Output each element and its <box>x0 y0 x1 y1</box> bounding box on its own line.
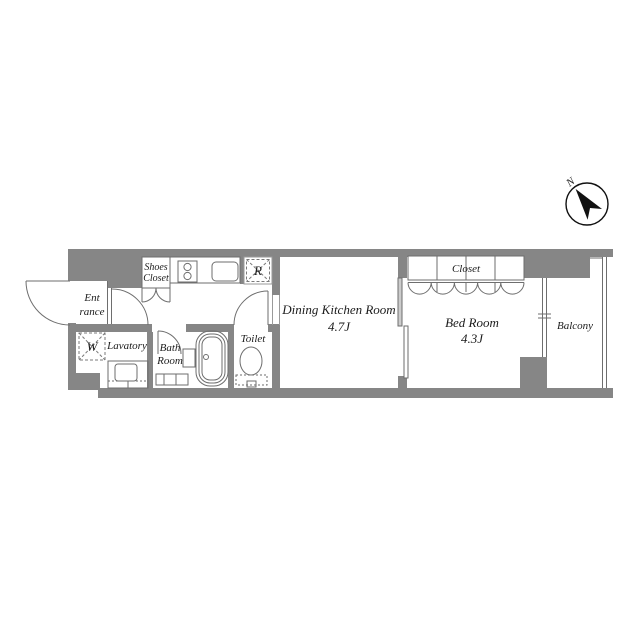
bath-label-1: Bath <box>160 342 181 354</box>
sliding-door-panel-1 <box>398 278 402 326</box>
bed-room-label: Bed Room <box>445 315 499 330</box>
closet-label: Closet <box>452 263 481 275</box>
compass-north-label: N <box>563 175 577 190</box>
lavatory-label: Lavatory <box>106 340 147 352</box>
wall-block-left-of-shoes-closet <box>108 257 142 288</box>
vanity-basin <box>115 364 137 381</box>
wall-corridor-dk-upper <box>272 249 280 295</box>
compass: N <box>560 172 608 225</box>
sliding-door-panel-2 <box>404 326 408 378</box>
entrance-label-1: Ent <box>83 292 100 304</box>
bathtub-drain <box>204 355 209 360</box>
shoes-closet-label-1: Shoes <box>144 262 167 273</box>
washer-label: W <box>87 339 99 354</box>
wall-bottom-left-block <box>68 373 100 390</box>
floor-plan-drawing: N Shoes Closet Ent rance W Lavatory Bath… <box>0 0 640 640</box>
toilet-bowl <box>240 347 262 375</box>
wall-bath-toilet-divider <box>228 332 234 388</box>
toilet-tank-dashed <box>236 375 267 385</box>
balcony-label: Balcony <box>557 320 593 332</box>
toilet-control <box>247 381 256 387</box>
wall-dk-bedroom-upper <box>398 257 407 278</box>
toilet-door-arc <box>234 291 268 325</box>
wall-corridor-dk-lower <box>272 325 280 392</box>
entrance-door-arc <box>26 281 70 325</box>
bed-room-size: 4.3J <box>461 331 484 346</box>
bath-counter <box>156 374 188 385</box>
wall-sanitary-top-1 <box>76 324 152 332</box>
wall-left-lower <box>68 323 76 375</box>
wall-left-upper <box>68 257 76 281</box>
dining-kitchen-size: 4.7J <box>328 319 351 334</box>
wall-bedroom-corner-block <box>520 357 547 388</box>
bathtub-inner <box>202 337 222 380</box>
entrance-label-2: rance <box>79 306 104 318</box>
wall-top <box>68 249 613 257</box>
shoes-closet-door-arc-left <box>142 288 156 302</box>
wall-balcony-top-block <box>520 257 590 278</box>
wall-block-above-entrance <box>76 257 108 281</box>
shoes-closet-label-2: Closet <box>143 273 169 284</box>
dining-kitchen-label: Dining Kitchen Room <box>281 302 395 317</box>
toilet-label: Toilet <box>241 333 267 345</box>
floor-plan: N Shoes Closet Ent rance W Lavatory Bath… <box>0 0 640 640</box>
fridge-label: R <box>253 263 262 278</box>
bath-label-2: Room <box>156 355 183 367</box>
shoes-closet-door-arc-right <box>156 288 170 302</box>
wall-bottom <box>98 388 613 398</box>
wall-counter-fridge-stub <box>240 257 244 284</box>
hall-door-arc <box>112 289 148 325</box>
bath-shelf <box>183 349 195 367</box>
